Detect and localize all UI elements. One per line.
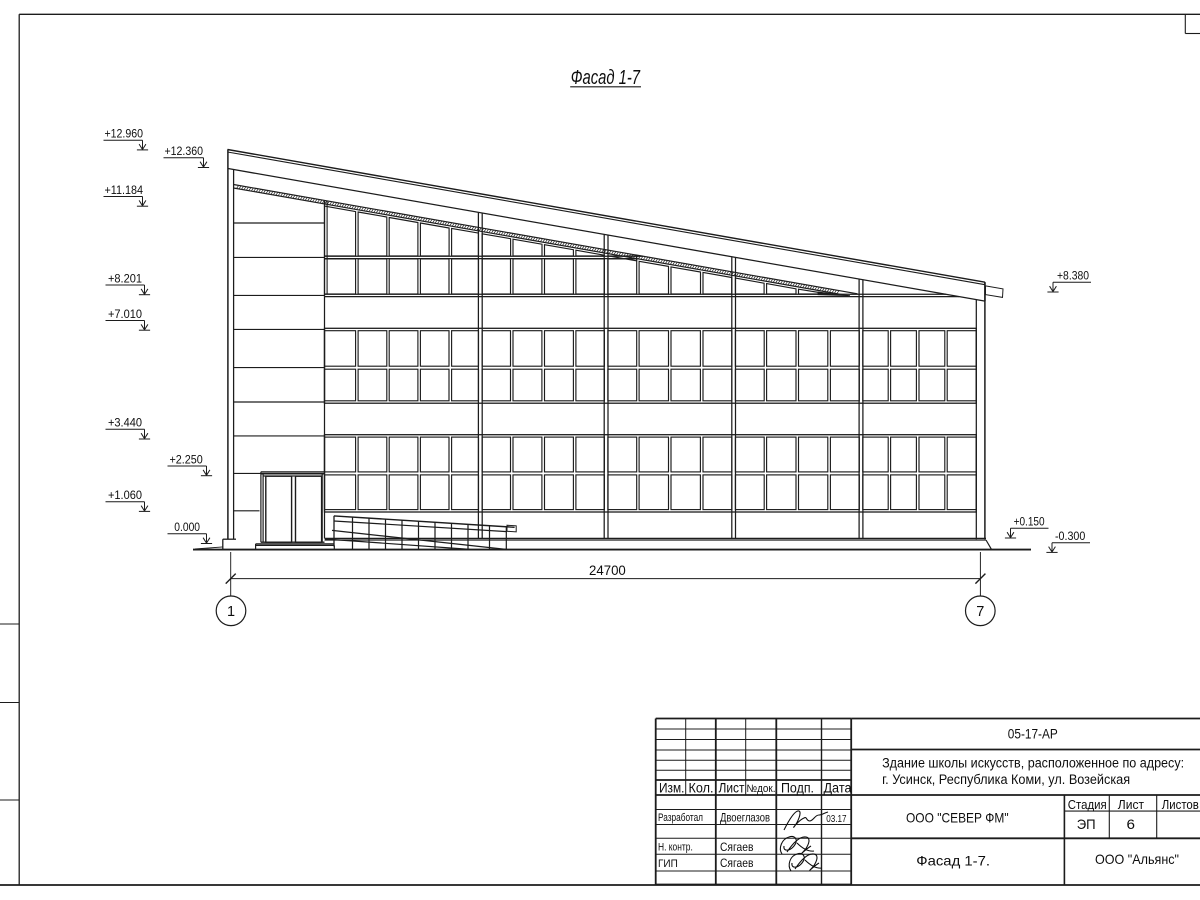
svg-text:03.17: 03.17 [826, 814, 847, 825]
svg-text:+2.250: +2.250 [170, 452, 203, 466]
svg-text:+8.201: +8.201 [108, 271, 142, 285]
svg-text:+7.010: +7.010 [108, 307, 142, 321]
svg-text:Здание школы искусств, располо: Здание школы искусств, расположенное по … [882, 756, 1184, 771]
svg-text:Фасад 1-7: Фасад 1-7 [571, 67, 641, 89]
svg-text:Сягаев: Сягаев [720, 840, 753, 854]
svg-text:1: 1 [227, 604, 235, 620]
svg-text:Листов: Листов [1162, 797, 1199, 812]
svg-text:-0.300: -0.300 [1055, 529, 1085, 543]
svg-text:ЭП: ЭП [1077, 817, 1096, 832]
svg-text:Разработал: Разработал [658, 812, 703, 824]
svg-text:+12.960: +12.960 [105, 127, 144, 141]
svg-text:ООО "СЕВЕР ФМ": ООО "СЕВЕР ФМ" [906, 810, 1009, 825]
svg-text:+12.360: +12.360 [165, 144, 204, 158]
svg-text:+1.060: +1.060 [108, 488, 142, 502]
svg-text:Фасад 1-7.: Фасад 1-7. [916, 854, 990, 869]
svg-text:ГИП: ГИП [658, 858, 678, 870]
svg-text:№док.: №док. [747, 783, 776, 795]
svg-text:05-17-АР: 05-17-АР [1008, 727, 1058, 742]
svg-text:г. Усинск, Республика Коми, ул: г. Усинск, Республика Коми, ул. Возейска… [882, 772, 1130, 787]
svg-text:Двоеглазов: Двоеглазов [720, 810, 770, 824]
svg-text:Лист: Лист [1118, 797, 1144, 812]
svg-text:+8.380: +8.380 [1057, 269, 1089, 283]
svg-text:+11.184: +11.184 [105, 183, 144, 197]
svg-text:Дата: Дата [824, 781, 852, 797]
svg-text:6: 6 [1127, 817, 1136, 832]
svg-text:Стадия: Стадия [1068, 797, 1107, 812]
svg-text:24700: 24700 [589, 562, 626, 578]
svg-text:Подп.: Подп. [781, 781, 814, 797]
svg-text:ООО "Альянс": ООО "Альянс" [1095, 852, 1179, 867]
svg-text:+0.150: +0.150 [1014, 515, 1045, 529]
svg-text:Изм.: Изм. [659, 781, 684, 797]
svg-text:Сягаев: Сягаев [720, 856, 753, 870]
svg-text:+3.440: +3.440 [108, 416, 142, 430]
svg-text:Кол.: Кол. [689, 781, 714, 797]
svg-text:0.000: 0.000 [174, 520, 200, 534]
svg-text:Лист: Лист [719, 781, 745, 797]
svg-text:Н. контр.: Н. контр. [658, 841, 693, 853]
svg-text:7: 7 [976, 604, 984, 620]
